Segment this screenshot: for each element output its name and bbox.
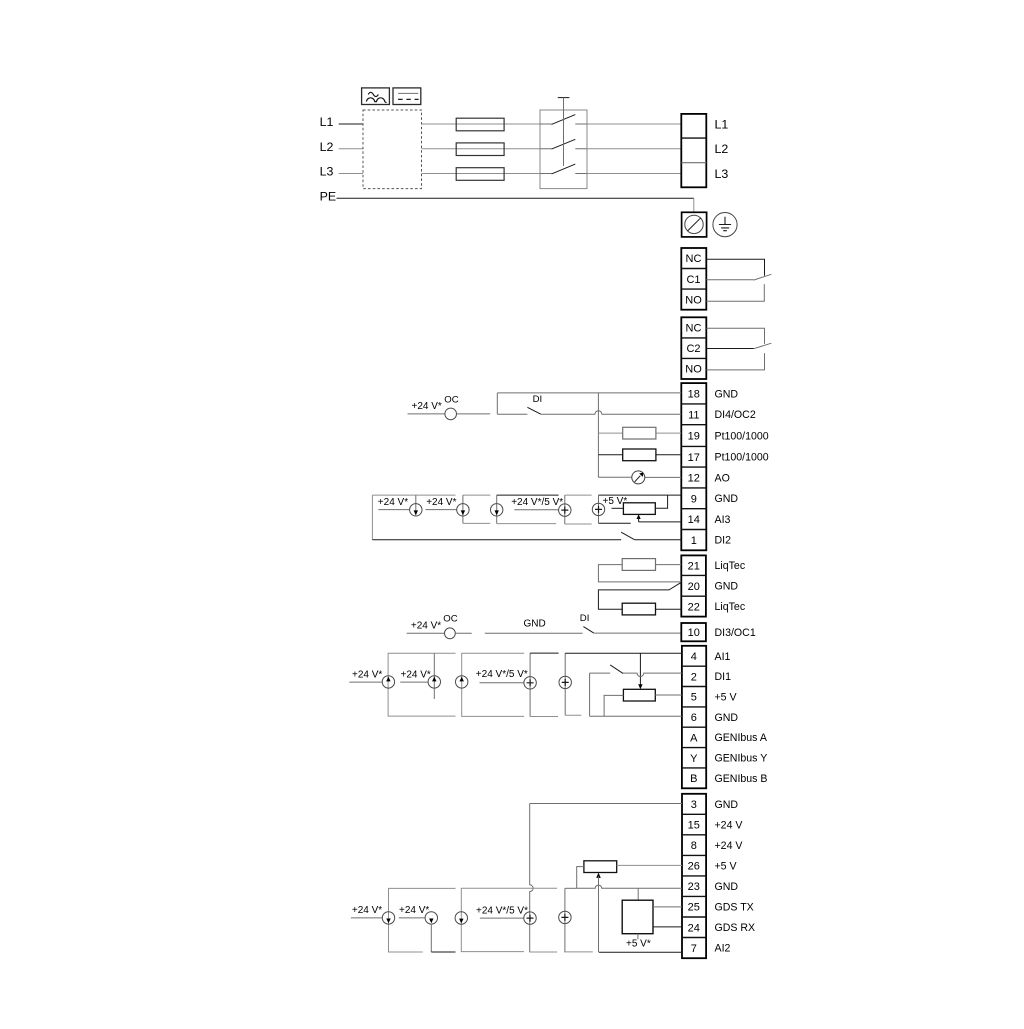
svg-text:GENIbus A: GENIbus A (715, 732, 768, 744)
svg-text:+5 V: +5 V (715, 861, 738, 873)
svg-text:DI: DI (533, 394, 543, 405)
svg-text:DI4/OC2: DI4/OC2 (715, 409, 756, 421)
svg-text:10: 10 (688, 627, 700, 639)
svg-text:C1: C1 (686, 274, 700, 286)
svg-text:+24 V*: +24 V* (378, 497, 408, 508)
svg-text:+24 V*: +24 V* (399, 905, 429, 916)
svg-text:+24 V: +24 V (715, 840, 744, 852)
svg-text:25: 25 (688, 902, 700, 914)
svg-text:GENIbus Y: GENIbus Y (715, 753, 768, 765)
svg-text:15: 15 (688, 820, 700, 832)
svg-text:7: 7 (691, 943, 697, 955)
svg-text:Pt100/1000: Pt100/1000 (715, 452, 769, 464)
svg-text:6: 6 (691, 712, 697, 724)
svg-text:3: 3 (691, 799, 697, 811)
svg-text:+5 V: +5 V (715, 692, 738, 704)
svg-text:2: 2 (691, 671, 697, 683)
svg-text:5: 5 (691, 692, 697, 704)
svg-text:23: 23 (688, 881, 700, 893)
svg-text:18: 18 (688, 389, 700, 401)
svg-text:+24 V*: +24 V* (352, 905, 382, 916)
svg-text:+24 V*/5 V*: +24 V*/5 V* (511, 497, 563, 508)
svg-text:14: 14 (688, 514, 700, 526)
svg-text:+24 V: +24 V (715, 819, 744, 831)
svg-text:AI1: AI1 (715, 651, 731, 663)
svg-text:24: 24 (688, 922, 700, 934)
svg-text:22: 22 (688, 601, 700, 613)
svg-text:OC: OC (444, 395, 458, 406)
svg-text:GND: GND (715, 493, 739, 505)
svg-text:L3: L3 (320, 165, 334, 179)
svg-text:OC: OC (443, 613, 457, 624)
svg-text:19: 19 (688, 431, 700, 443)
svg-text:GENIbus B: GENIbus B (715, 773, 768, 785)
svg-text:26: 26 (688, 861, 700, 873)
svg-text:GND: GND (715, 712, 739, 724)
svg-text:L1: L1 (715, 118, 729, 132)
svg-text:GND: GND (715, 388, 739, 400)
svg-text:+24 V*: +24 V* (401, 669, 431, 680)
svg-text:L1: L1 (320, 115, 334, 129)
svg-text:DI: DI (580, 613, 590, 624)
svg-text:L2: L2 (320, 140, 334, 154)
svg-text:4: 4 (691, 651, 697, 663)
svg-text:21: 21 (688, 560, 700, 572)
svg-text:NC: NC (686, 253, 702, 265)
svg-text:A: A (690, 732, 698, 744)
svg-text:20: 20 (688, 581, 700, 593)
svg-text:8: 8 (691, 840, 697, 852)
svg-text:9: 9 (691, 493, 697, 505)
svg-text:+24 V*/5 V*: +24 V*/5 V* (476, 669, 528, 680)
svg-text:12: 12 (688, 473, 700, 485)
svg-text:AI3: AI3 (715, 514, 731, 526)
svg-text:+24 V*: +24 V* (426, 497, 456, 508)
svg-text:DI2: DI2 (715, 535, 732, 547)
svg-text:+24 V*: +24 V* (411, 621, 441, 632)
svg-text:GDS RX: GDS RX (715, 922, 756, 934)
svg-text:DI3/OC1: DI3/OC1 (715, 627, 756, 639)
svg-text:B: B (690, 773, 697, 785)
svg-text:AO: AO (715, 472, 730, 484)
svg-text:+24 V*: +24 V* (352, 669, 382, 680)
svg-text:LiqTec: LiqTec (715, 601, 746, 613)
svg-text:L3: L3 (715, 167, 729, 181)
svg-text:Pt100/1000: Pt100/1000 (715, 430, 769, 442)
svg-text:DI1: DI1 (715, 671, 732, 683)
svg-text:Y: Y (690, 753, 698, 765)
svg-text:+24 V*/5 V*: +24 V*/5 V* (476, 905, 528, 916)
svg-text:C2: C2 (686, 343, 700, 355)
svg-text:GND: GND (524, 619, 546, 630)
svg-text:PE: PE (320, 189, 337, 203)
svg-text:11: 11 (688, 409, 699, 421)
svg-text:NC: NC (686, 323, 702, 335)
svg-text:AI2: AI2 (715, 943, 731, 955)
svg-text:LiqTec: LiqTec (715, 560, 746, 572)
svg-text:L2: L2 (715, 142, 729, 156)
svg-text:GDS TX: GDS TX (715, 902, 754, 914)
svg-text:NO: NO (685, 364, 702, 376)
svg-text:1: 1 (691, 535, 697, 547)
svg-text:NO: NO (685, 294, 702, 306)
svg-text:GND: GND (715, 881, 739, 893)
svg-text:GND: GND (715, 799, 739, 811)
svg-text:+24 V*: +24 V* (412, 401, 442, 412)
svg-text:17: 17 (688, 452, 700, 464)
svg-text:+5 V*: +5 V* (626, 938, 651, 949)
svg-text:GND: GND (715, 581, 739, 593)
